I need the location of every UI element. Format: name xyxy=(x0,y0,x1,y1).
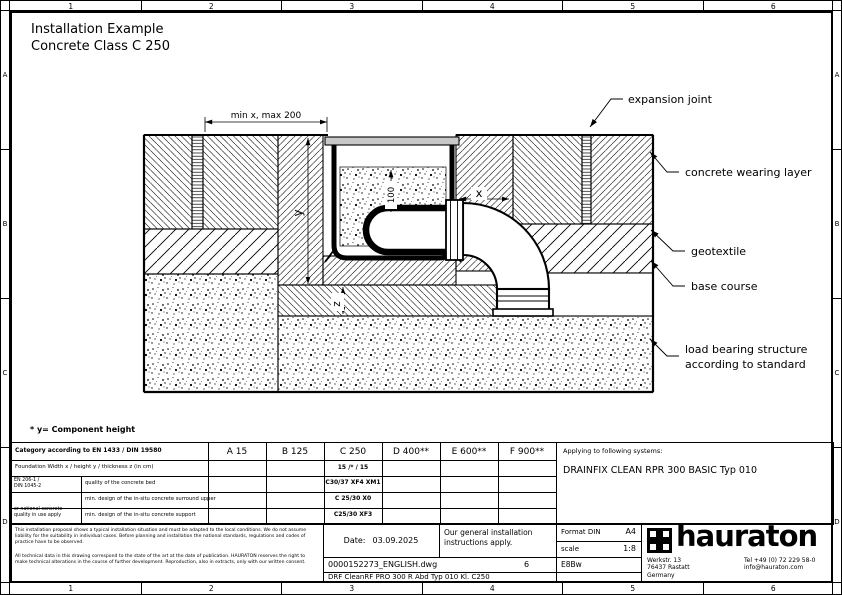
table-line xyxy=(11,476,556,477)
revision-code: E8Bw xyxy=(561,560,582,569)
table-line xyxy=(81,476,82,524)
grating xyxy=(325,137,459,145)
format-label: Format DIN xyxy=(561,528,601,536)
drawing-sheet: 1 2 3 4 5 6 1 2 3 4 5 6 A B C D A B C D … xyxy=(0,0,842,595)
class-f900: F 900** xyxy=(498,447,556,457)
sheet-number: 6 xyxy=(524,560,529,569)
concrete-row-label: min. design of the in-situ concrete surr… xyxy=(85,496,216,502)
instructions-note: Our general installation instructions ap… xyxy=(444,528,550,547)
footer-line xyxy=(439,524,440,557)
disclaimer-paragraph-2: All technical data in this drawing corre… xyxy=(15,554,317,566)
class-b125: B 125 xyxy=(266,447,324,457)
dim-y-label: y xyxy=(291,209,305,216)
date-value: 03.09.2025 xyxy=(373,536,419,545)
drawing-description: DRF CleanRF PRO 300 R Abd Typ 010 Kl. C2… xyxy=(328,573,490,581)
foundation-row-label: Foundation Width x / height y / thicknes… xyxy=(15,464,153,470)
footer-line xyxy=(323,557,641,558)
foundation-c250-value: 15 /* / 15 xyxy=(324,464,382,471)
callout-expansion-joint: expansion joint xyxy=(628,93,713,106)
norm-cell-top: EN 206-1 / DIN 1045-2 xyxy=(14,478,41,490)
footer-line xyxy=(556,524,557,583)
date-cell: Date: 03.09.2025 xyxy=(323,524,439,557)
phone-number: Tel +49 (0) 72 229 58-0 xyxy=(744,557,815,564)
applying-systems-label: Applying to following systems: xyxy=(563,447,662,455)
pipe-socket xyxy=(493,309,553,316)
file-name: 0000152273_ENGLISH.dwg xyxy=(328,560,437,569)
table-line xyxy=(11,460,556,461)
dim-z-label: z xyxy=(331,301,343,307)
scale-value: 1:8 xyxy=(599,544,636,553)
norm-cell-bottom: or national concrete quality in use appl… xyxy=(14,507,62,519)
dim-100-label: 100 xyxy=(387,187,397,203)
concrete-row-value: C30/37 XF4 XM1 xyxy=(324,479,382,486)
class-c250: C 250 xyxy=(324,447,382,457)
email-address: info@hauraton.com xyxy=(744,564,815,571)
concrete-row-label: min. design of the in-situ concrete supp… xyxy=(85,512,196,518)
hauraton-logo-icon xyxy=(647,528,672,553)
category-row-label: Category according to EN 1433 / DIN 1958… xyxy=(15,447,162,454)
concrete-row-value: C 25/30 X0 xyxy=(324,495,382,502)
footer-line xyxy=(556,541,641,542)
table-line xyxy=(556,442,557,524)
hauraton-wordmark: hauraton xyxy=(676,519,817,553)
scale-label: scale xyxy=(561,545,579,553)
dim-x-label: x xyxy=(476,186,483,200)
disclaimer-paragraph-1: This installation proposal shows a typic… xyxy=(15,528,317,546)
siphon-pipe xyxy=(366,208,450,252)
class-a15: A 15 xyxy=(208,447,266,457)
footer-line xyxy=(641,524,642,583)
table-line xyxy=(11,492,556,493)
callout-base-course: base course xyxy=(691,280,758,293)
class-d400: D 400** xyxy=(382,447,440,457)
class-e600: E 600** xyxy=(440,447,498,457)
wall-coupling xyxy=(446,200,463,260)
callout-load-bearing-2: according to standard xyxy=(685,358,806,371)
concrete-row-value: C25/30 XF3 xyxy=(324,511,382,518)
callout-load-bearing-1: load bearing structure xyxy=(685,343,808,356)
format-value: A4 xyxy=(599,527,636,536)
concrete-row-label: quality of the concrete bed xyxy=(85,480,155,486)
date-label: Date: xyxy=(344,536,366,545)
applying-systems-value: DRAINFIX CLEAN RPR 300 BASIC Typ 010 xyxy=(563,465,757,476)
company-contact: Tel +49 (0) 72 229 58-0 info@hauraton.co… xyxy=(744,557,815,572)
callout-wearing-layer: concrete wearing layer xyxy=(685,166,812,179)
company-address: Werkstr. 13 76437 Rastatt Germany xyxy=(647,557,690,579)
dim-top-label: min x, max 200 xyxy=(231,111,302,121)
component-height-note: * y= Component height xyxy=(30,425,135,434)
callout-geotextile: geotextile xyxy=(691,245,746,258)
table-line xyxy=(11,508,556,509)
